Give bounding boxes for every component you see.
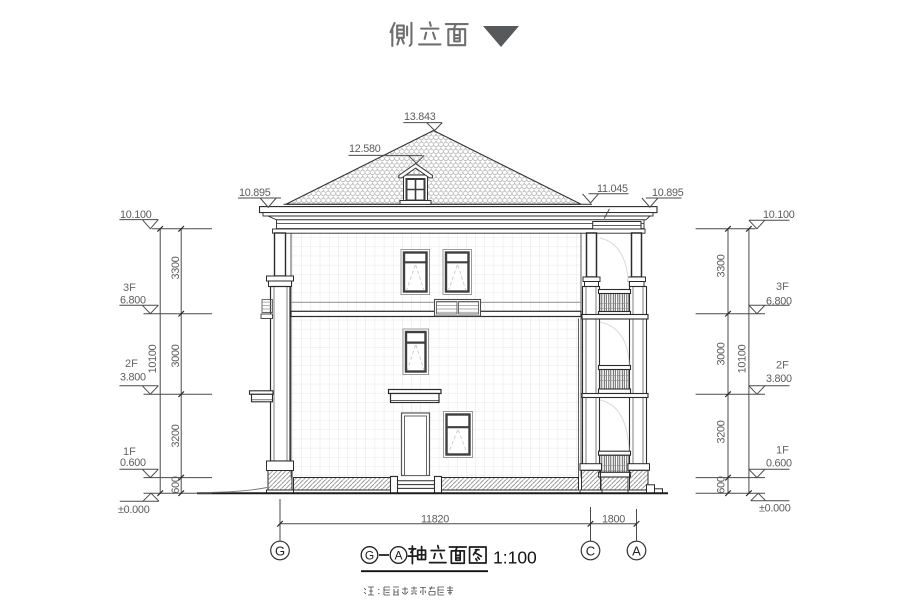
svg-text:±0.000: ±0.000: [759, 503, 791, 515]
svg-text:10100: 10100: [147, 344, 159, 373]
svg-text:0.600: 0.600: [766, 458, 792, 470]
svg-text:3000: 3000: [716, 342, 728, 365]
svg-text:3300: 3300: [716, 254, 728, 277]
svg-text:±0.000: ±0.000: [118, 504, 150, 516]
svg-text:A: A: [632, 544, 641, 559]
svg-text:10.100: 10.100: [120, 209, 152, 221]
svg-text:11820: 11820: [421, 513, 449, 525]
svg-text:6.800: 6.800: [766, 296, 792, 308]
svg-text:0.600: 0.600: [120, 457, 146, 469]
svg-text:2F: 2F: [776, 360, 789, 372]
svg-text:3F: 3F: [776, 281, 789, 293]
svg-text:3200: 3200: [170, 424, 182, 447]
svg-text:600: 600: [170, 476, 182, 494]
svg-text:2F: 2F: [125, 358, 138, 370]
svg-text:10100: 10100: [737, 344, 749, 373]
svg-text:13.843: 13.843: [404, 111, 436, 123]
svg-text:3.800: 3.800: [766, 373, 792, 385]
svg-text:G: G: [365, 549, 374, 563]
svg-text:3300: 3300: [170, 256, 182, 279]
svg-text:A: A: [394, 549, 402, 563]
svg-text:C: C: [586, 544, 595, 559]
svg-text:12.580: 12.580: [349, 143, 381, 155]
svg-text:600: 600: [716, 476, 728, 494]
svg-text:10.895: 10.895: [239, 187, 271, 199]
svg-text:10.895: 10.895: [652, 187, 684, 199]
svg-text:G: G: [275, 544, 285, 559]
svg-text:3F: 3F: [123, 282, 136, 294]
svg-text:10.100: 10.100: [763, 209, 795, 221]
svg-text:1F: 1F: [776, 445, 789, 457]
svg-text:1:100: 1:100: [493, 548, 537, 568]
svg-text:3200: 3200: [716, 420, 728, 443]
svg-text:6.800: 6.800: [120, 295, 146, 307]
svg-text:1800: 1800: [602, 513, 625, 525]
svg-text:3000: 3000: [170, 344, 182, 367]
svg-text:11.045: 11.045: [597, 183, 628, 195]
svg-text:3.800: 3.800: [120, 372, 146, 384]
